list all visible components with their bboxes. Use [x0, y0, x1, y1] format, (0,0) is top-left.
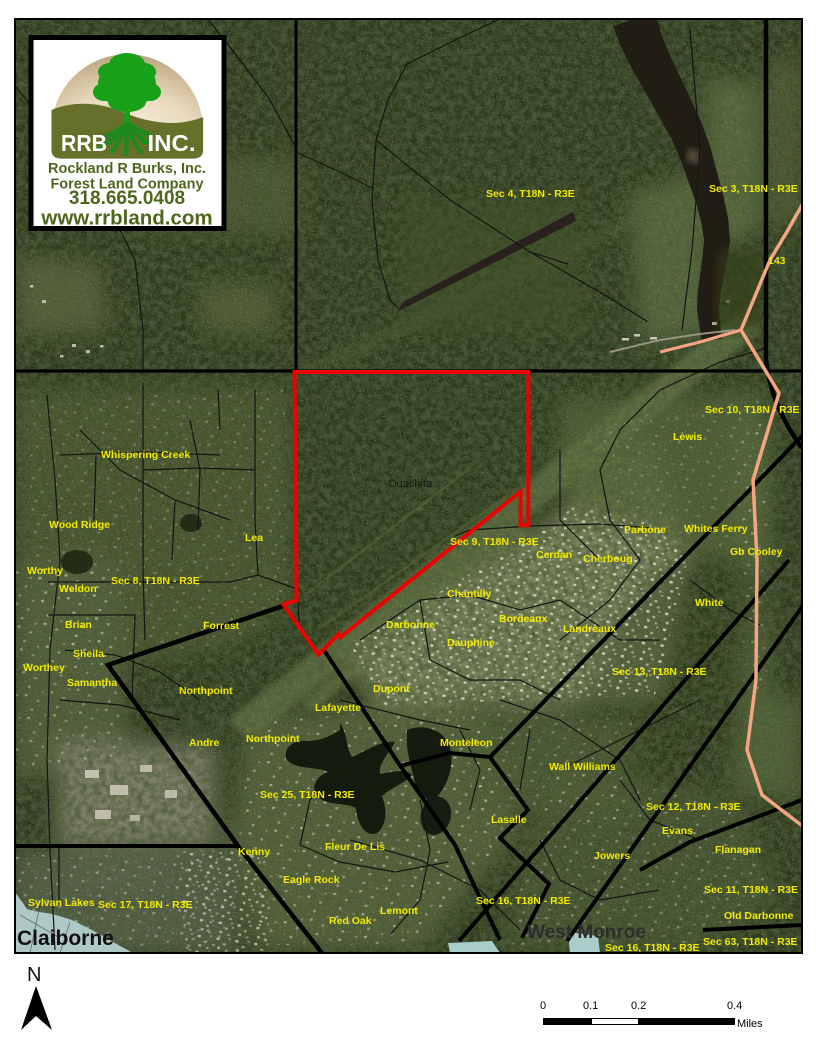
svg-text:Sec 8, T18N - R3E: Sec 8, T18N - R3E — [111, 575, 200, 587]
svg-text:Evans: Evans — [662, 825, 693, 837]
svg-text:Sec 13, T18N - R3E: Sec 13, T18N - R3E — [612, 666, 707, 678]
svg-text:Lafayette: Lafayette — [315, 702, 361, 714]
svg-text:RRB: RRB — [61, 130, 107, 156]
svg-text:Cherboug: Cherboug — [583, 553, 633, 565]
svg-text:Worthy: Worthy — [27, 565, 63, 577]
svg-text:Northpoint: Northpoint — [246, 733, 300, 745]
svg-text:Flanagan: Flanagan — [715, 844, 761, 856]
svg-text:0.4: 0.4 — [727, 1000, 742, 1012]
svg-text:Sec 3, T18N - R3E: Sec 3, T18N - R3E — [709, 183, 798, 195]
svg-text:Wall Williams: Wall Williams — [549, 761, 616, 773]
svg-text:Brian: Brian — [65, 619, 92, 631]
svg-text:Darbonne: Darbonne — [386, 619, 435, 631]
svg-text:Samantha: Samantha — [67, 677, 117, 689]
svg-text:Dauphine: Dauphine — [447, 637, 495, 649]
svg-text:Rockland R Burks, Inc.: Rockland R Burks, Inc. — [48, 161, 206, 177]
svg-text:Kenny: Kenny — [238, 846, 270, 858]
svg-text:0.1: 0.1 — [583, 1000, 598, 1012]
svg-text:N: N — [27, 964, 41, 986]
svg-text:Eagle Rock: Eagle Rock — [283, 874, 340, 886]
svg-text:Miles: Miles — [737, 1018, 763, 1030]
svg-text:Andre: Andre — [189, 737, 219, 749]
svg-text:Sec 12, T18N - R3E: Sec 12, T18N - R3E — [646, 801, 741, 813]
svg-text:Bordeaux: Bordeaux — [499, 613, 548, 625]
svg-text:Lea: Lea — [245, 532, 263, 544]
svg-text:West Monroe: West Monroe — [527, 922, 646, 943]
svg-text:143: 143 — [768, 255, 786, 267]
svg-text:Sec 17, T18N - R3E: Sec 17, T18N - R3E — [98, 899, 193, 911]
svg-text:Ouachita: Ouachita — [388, 478, 433, 490]
svg-text:Red Oak: Red Oak — [329, 915, 372, 927]
svg-text:Wood Ridge: Wood Ridge — [49, 519, 110, 531]
svg-text:Sheila: Sheila — [73, 648, 104, 660]
svg-text:Weldon: Weldon — [59, 583, 97, 595]
svg-text:Sec 25, T18N - R3E: Sec 25, T18N - R3E — [260, 789, 355, 801]
svg-text:Northpoint: Northpoint — [179, 685, 233, 697]
svg-text:0.2: 0.2 — [631, 1000, 646, 1012]
svg-text:Lemont: Lemont — [380, 905, 418, 917]
svg-text:Sec 63, T18N - R3E: Sec 63, T18N - R3E — [703, 936, 798, 948]
svg-text:Whispering Creek: Whispering Creek — [101, 449, 190, 461]
svg-text:0: 0 — [540, 1000, 546, 1012]
svg-text:Monteleon: Monteleon — [440, 737, 493, 749]
svg-text:Gb Cooley: Gb Cooley — [730, 546, 783, 558]
svg-text:Dupont: Dupont — [373, 683, 410, 695]
svg-text:Sec 10, T18N - R3E: Sec 10, T18N - R3E — [705, 404, 800, 416]
svg-text:Jowers: Jowers — [594, 850, 630, 862]
svg-text:Old Darbonne: Old Darbonne — [724, 910, 794, 922]
svg-text:Lewis: Lewis — [673, 431, 702, 443]
svg-text:Cerdan: Cerdan — [536, 549, 572, 561]
svg-text:Fleur De Lis: Fleur De Lis — [325, 841, 385, 853]
svg-text:White: White — [695, 597, 724, 609]
svg-text:www.rrbland.com: www.rrbland.com — [40, 207, 212, 230]
svg-text:Sec 11, T18N - R3E: Sec 11, T18N - R3E — [704, 884, 798, 896]
svg-text:Parbone: Parbone — [624, 524, 666, 536]
svg-text:Sylvan Lakes: Sylvan Lakes — [28, 897, 95, 909]
svg-text:Claiborne: Claiborne — [17, 927, 114, 950]
svg-text:Chantilly: Chantilly — [447, 588, 491, 600]
svg-text:Forrest: Forrest — [203, 620, 240, 632]
svg-text:Sec 16, T18N - R3E: Sec 16, T18N - R3E — [476, 895, 571, 907]
svg-text:Landreaux: Landreaux — [563, 623, 616, 635]
svg-text:Sec 4, T18N - R3E: Sec 4, T18N - R3E — [486, 188, 575, 200]
svg-text:Worthey: Worthey — [23, 662, 65, 674]
svg-text:Sec 9, T18N - R3E: Sec 9, T18N - R3E — [450, 536, 539, 548]
svg-text:Whites Ferry: Whites Ferry — [684, 523, 748, 535]
svg-text:INC.: INC. — [148, 130, 196, 156]
svg-text:Lasalle: Lasalle — [491, 814, 527, 826]
